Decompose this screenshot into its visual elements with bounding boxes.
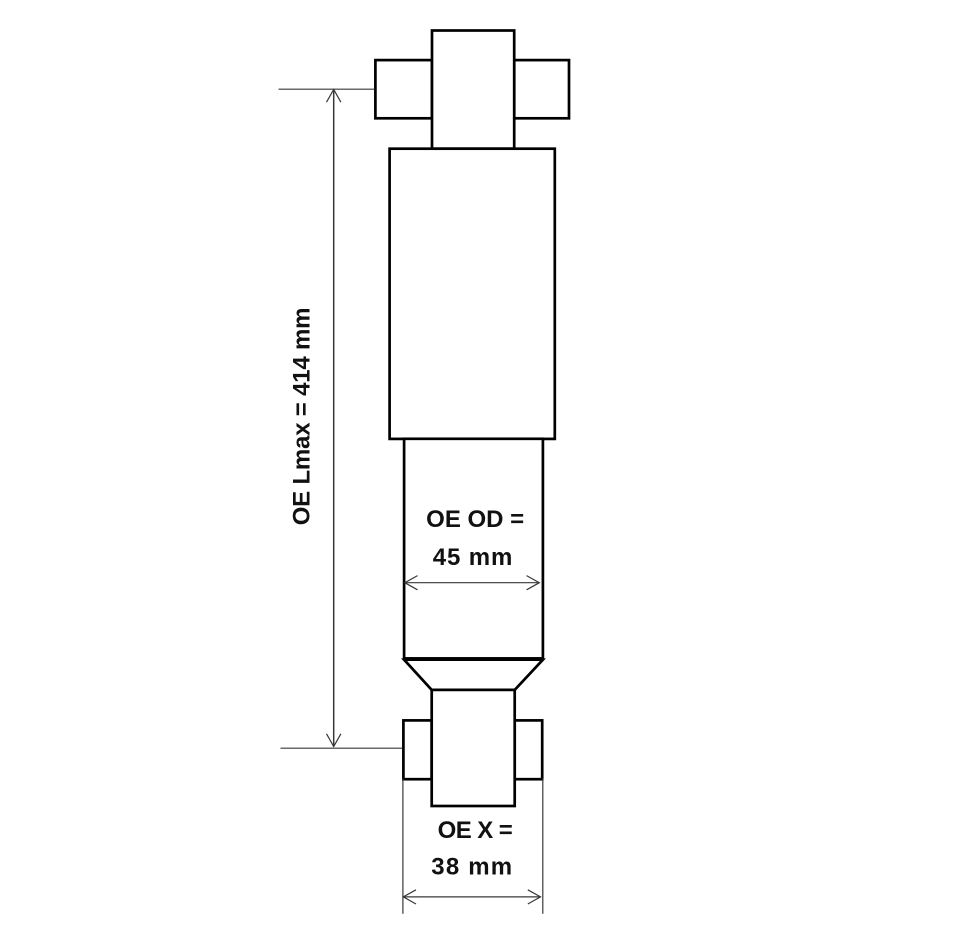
svg-text:OE X =: OE X =: [438, 817, 513, 844]
svg-text:45 mm: 45 mm: [433, 544, 514, 571]
svg-text:OE Lmax = 414 mm: OE Lmax = 414 mm: [289, 308, 316, 526]
svg-text:OE OD =: OE OD =: [426, 506, 524, 533]
svg-text:38 mm: 38 mm: [431, 854, 513, 881]
